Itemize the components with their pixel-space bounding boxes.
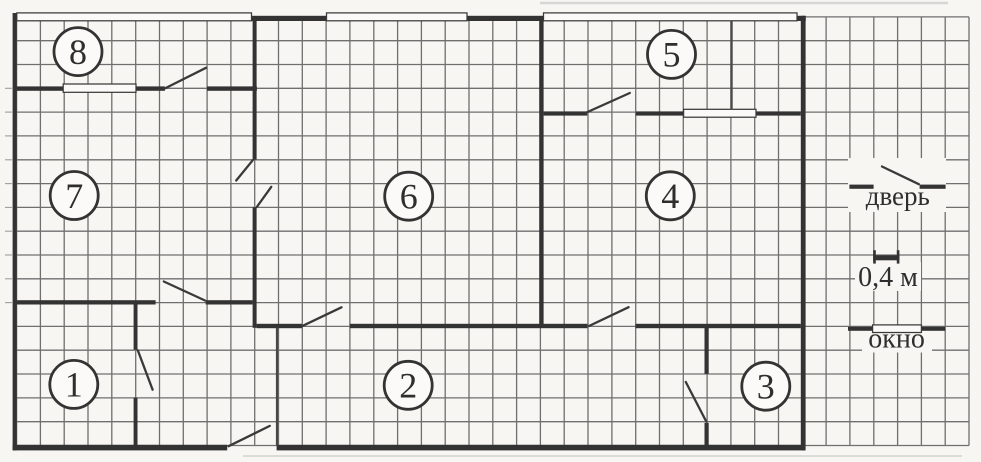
svg-text:6: 6 — [400, 177, 418, 217]
svg-text:3: 3 — [757, 367, 775, 407]
svg-text:1: 1 — [65, 365, 83, 405]
svg-text:0,4 м: 0,4 м — [858, 262, 918, 293]
svg-text:4: 4 — [661, 176, 679, 216]
svg-text:2: 2 — [399, 366, 417, 406]
svg-text:8: 8 — [69, 32, 87, 72]
svg-text:7: 7 — [65, 176, 83, 216]
svg-text:дверь: дверь — [866, 181, 930, 211]
svg-text:окно: окно — [868, 324, 925, 355]
svg-text:5: 5 — [663, 35, 681, 75]
